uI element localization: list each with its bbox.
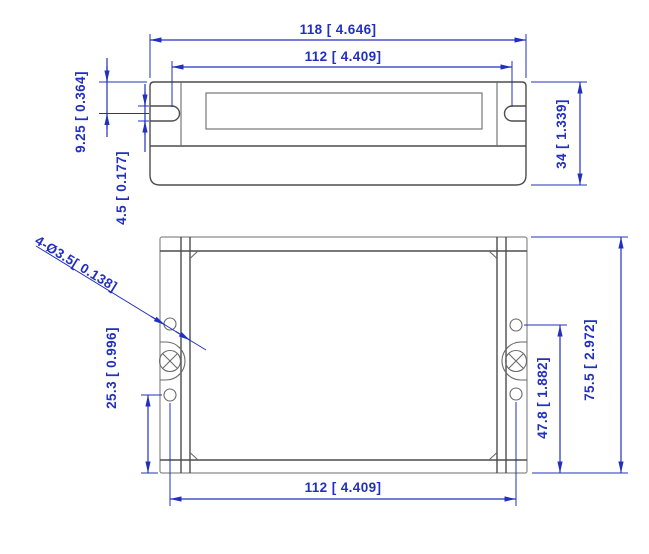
top-view-dimensions: 4-Ø3.5[ 0.138] 25.3 [ 0.996] 47.8 [ 1.88… [32,233,628,506]
mount-hole-top-right [510,319,522,331]
front-connector-strip [206,93,482,129]
dim-slot-width-label: 4.5 [ 0.177] [114,151,129,225]
corner-chamfer [191,252,198,259]
front-right-slot [505,106,526,121]
front-left-slot [150,106,180,121]
leader-arrow [151,316,165,325]
dim-mount-hole-spacing-label: 112 [ 4.409] [305,480,382,495]
leader-arrow [176,332,190,341]
front-view [150,82,526,185]
dim-slot-offset-label: 9.25 [ 0.364] [73,71,88,153]
drawing-canvas: 118 [ 4.646] 112 [ 4.409] 9.25 [ 0.364] … [0,0,649,554]
corner-chamfer [490,453,497,460]
corner-chamfer [191,453,198,460]
dim-slot-spacing-label: 112 [ 4.409] [305,49,382,64]
dim-overall-height-label: 34 [ 1.339] [554,99,569,169]
corner-chamfer [490,252,497,259]
dim-overall-depth-label: 75.5 [ 2.972] [582,319,597,401]
dim-hole-callout-label: 4-Ø3.5[ 0.138] [32,233,119,295]
dim-hole-to-edge-label: 25.3 [ 0.996] [104,327,119,409]
mount-hole-bottom-left [164,389,176,401]
dim-overall-width-label: 118 [ 4.646] [300,22,377,37]
mount-hole-bottom-right [510,388,522,400]
top-outline [160,237,527,473]
dim-hole-span-vertical-label: 47.8 [ 1.882] [535,357,550,439]
dimension-drawing: 118 [ 4.646] 112 [ 4.409] 9.25 [ 0.364] … [0,0,649,554]
top-view [160,237,528,473]
